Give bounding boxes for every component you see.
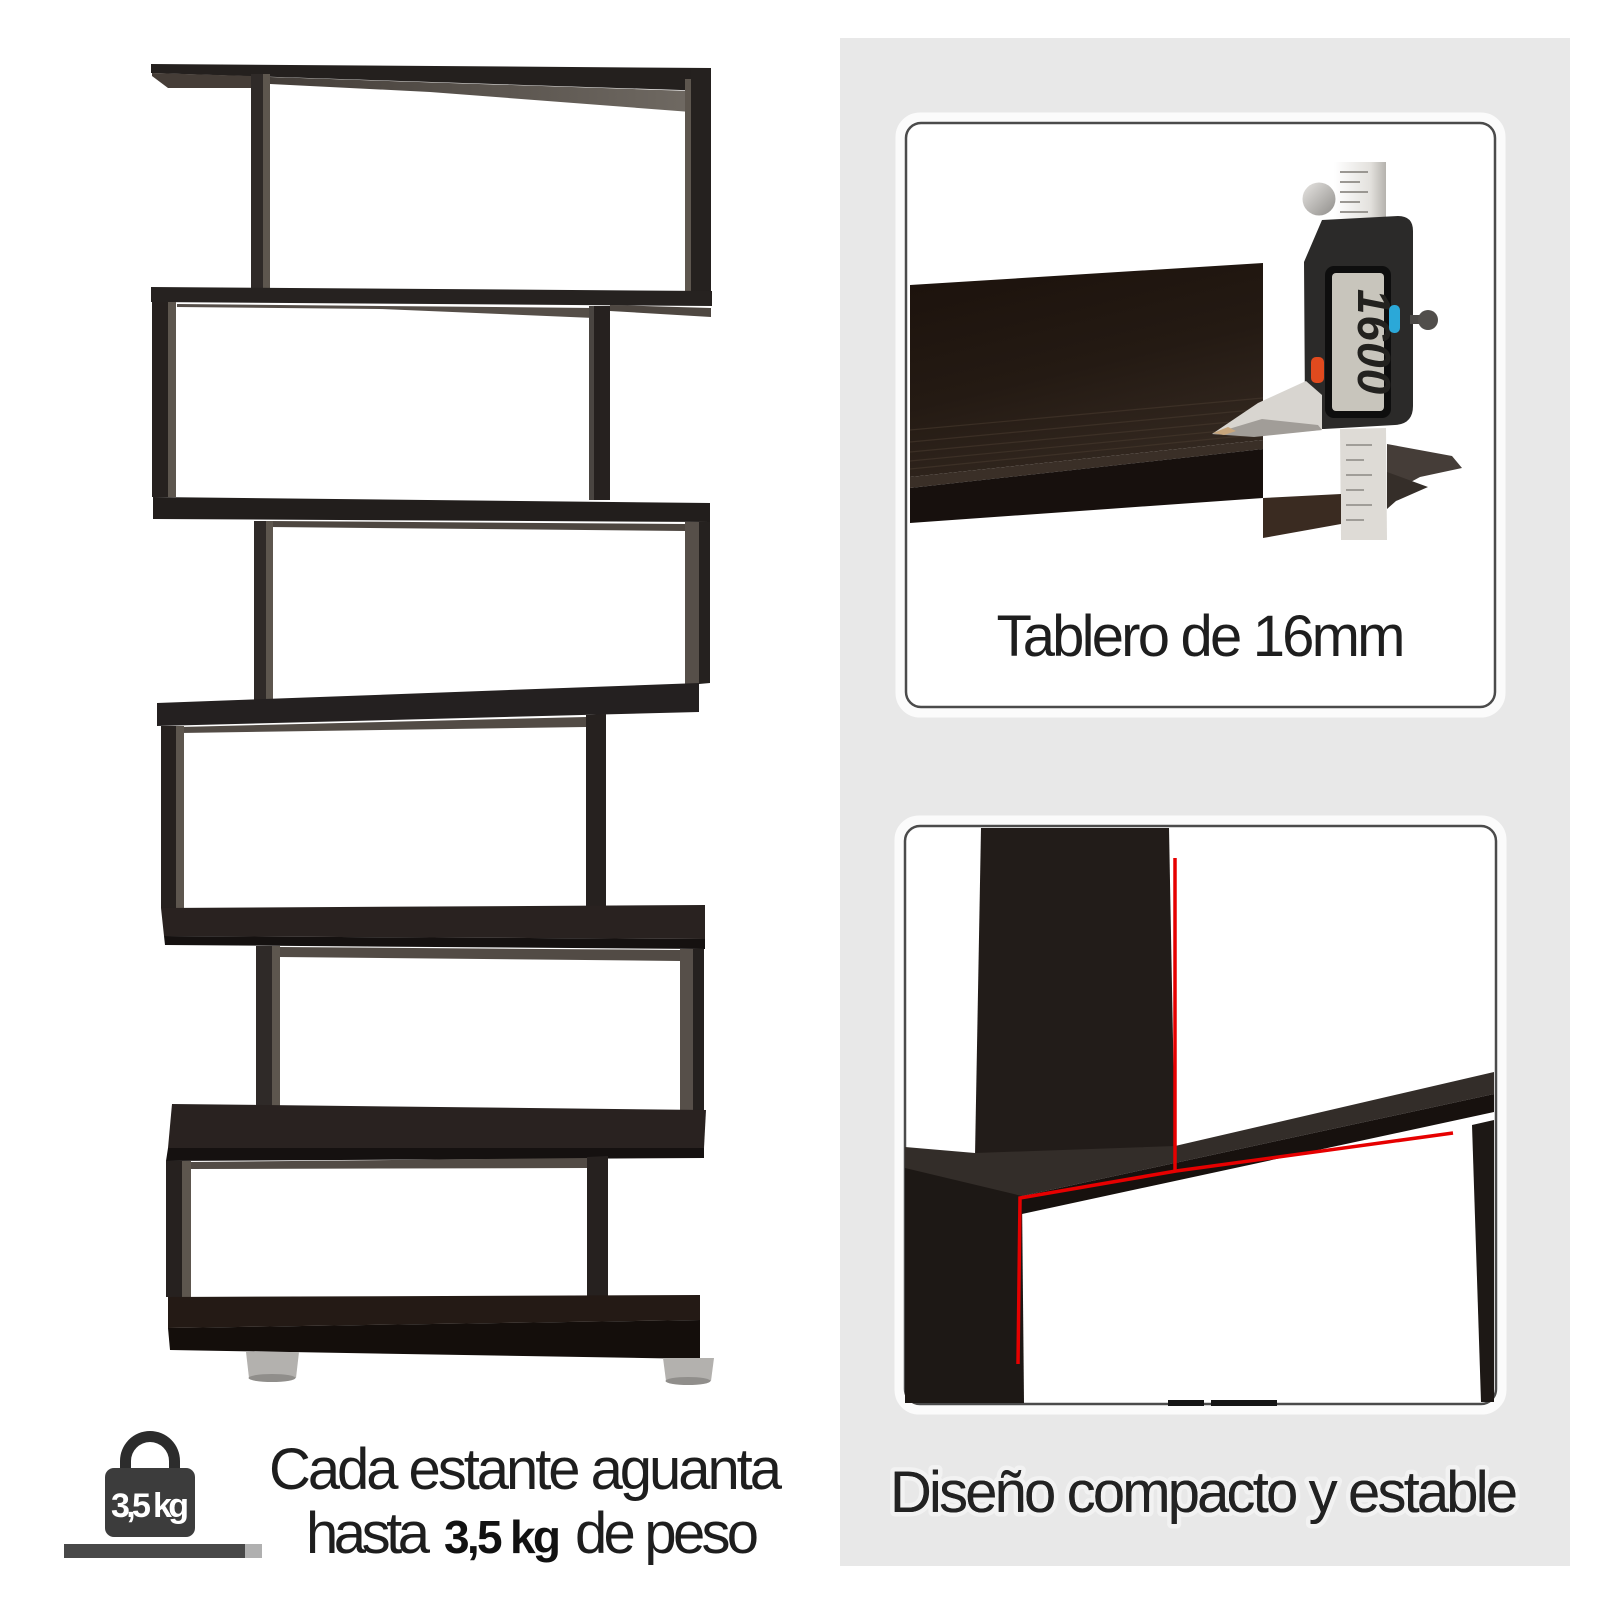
svg-text:1600: 1600 <box>1348 289 1400 395</box>
svg-text:hasta: hasta <box>306 1501 431 1566</box>
svg-text:3,5 kg: 3,5 kg <box>111 1487 189 1525</box>
svg-text:Cada estante aguanta: Cada estante aguanta <box>269 1437 783 1502</box>
svg-text:Diseño compacto y estable: Diseño compacto y estable <box>890 1460 1518 1525</box>
svg-text:Tablero de 16mm: Tablero de 16mm <box>997 604 1406 669</box>
svg-text:3,5 kg: 3,5 kg <box>444 1511 561 1563</box>
svg-text:de peso: de peso <box>575 1501 759 1566</box>
